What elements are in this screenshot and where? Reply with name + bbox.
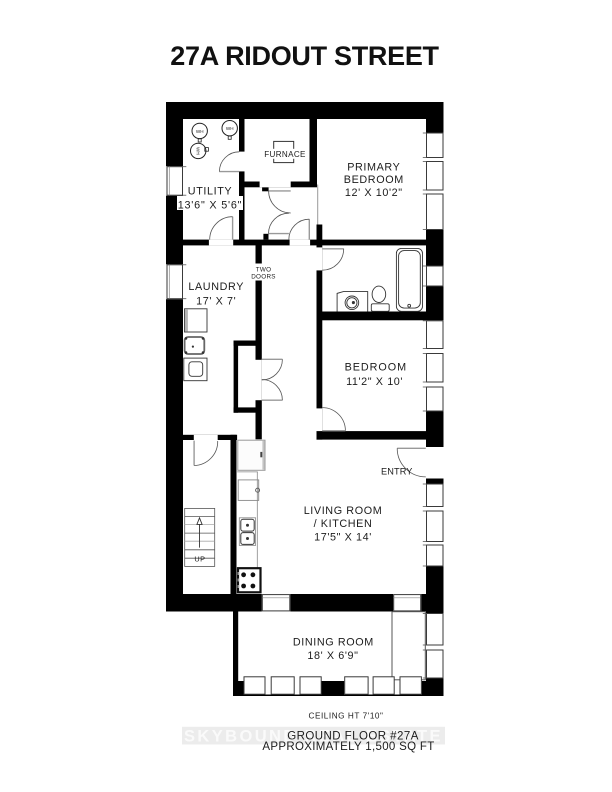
svg-text:UTILITY: UTILITY: [188, 185, 232, 197]
svg-text:18' X 6'9": 18' X 6'9": [307, 650, 358, 662]
svg-text:/ KITCHEN: / KITCHEN: [314, 518, 373, 530]
svg-text:FURNACE: FURNACE: [264, 150, 306, 159]
svg-text:LAUNDRY: LAUNDRY: [188, 281, 244, 293]
svg-text:UP: UP: [194, 554, 205, 563]
svg-text:27A RIDOUT STREET: 27A RIDOUT STREET: [170, 41, 439, 71]
svg-text:ENTRY: ENTRY: [381, 467, 412, 477]
svg-text:17' X 7': 17' X 7': [196, 296, 236, 308]
svg-text:WH: WH: [226, 126, 234, 131]
svg-text:17'5" X 14': 17'5" X 14': [314, 532, 372, 544]
svg-text:WH: WH: [196, 147, 201, 155]
svg-text:DINING ROOM: DINING ROOM: [293, 636, 374, 648]
svg-text:APPROXIMATELY 1,500 SQ FT: APPROXIMATELY 1,500 SQ FT: [262, 741, 434, 753]
svg-text:11'2" X 10': 11'2" X 10': [346, 376, 403, 388]
svg-text:DOORS: DOORS: [251, 273, 276, 280]
svg-text:LIVING ROOM: LIVING ROOM: [304, 505, 383, 517]
svg-text:PRIMARY: PRIMARY: [347, 162, 400, 174]
svg-text:BEDROOM: BEDROOM: [345, 361, 407, 373]
svg-text:WH: WH: [196, 129, 204, 134]
svg-text:12' X 10'2": 12' X 10'2": [345, 187, 403, 199]
svg-text:13'6" X 5'6": 13'6" X 5'6": [178, 200, 243, 212]
svg-text:BEDROOM: BEDROOM: [344, 174, 404, 186]
svg-text:CEILING HT 7'10": CEILING HT 7'10": [308, 711, 383, 720]
